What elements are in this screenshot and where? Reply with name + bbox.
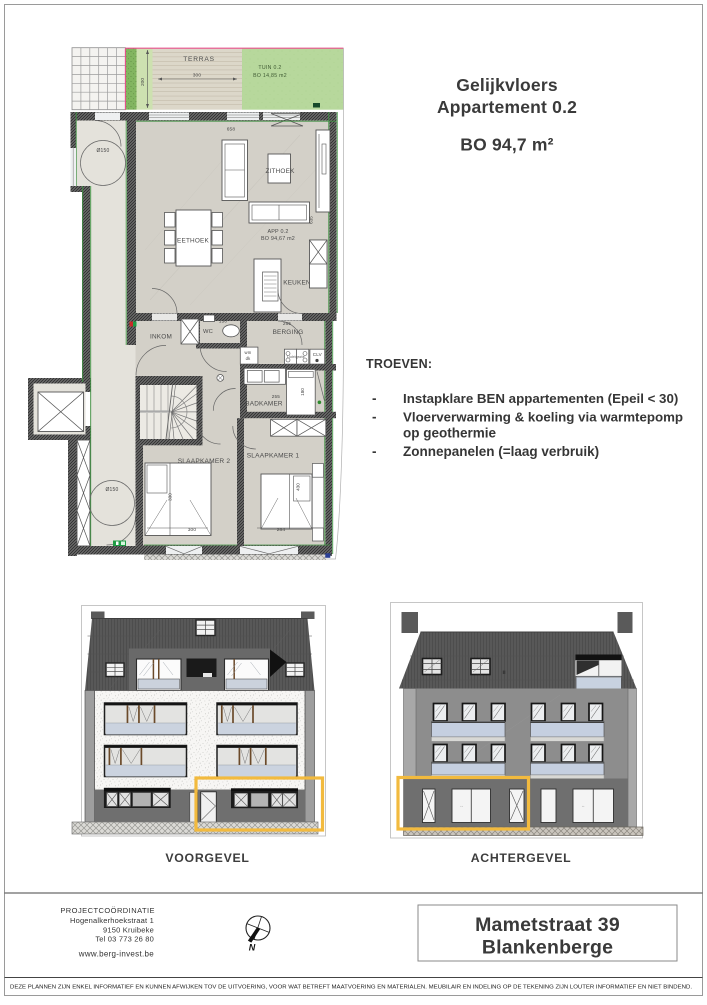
svg-text:Ø150: Ø150	[96, 148, 109, 154]
svg-text:-: -	[372, 391, 377, 406]
svg-text:WC: WC	[203, 329, 213, 335]
svg-text:dk: dk	[246, 356, 252, 361]
svg-text:Instapklare BEN appartementen: Instapklare BEN appartementen (Epeil < 3…	[403, 391, 678, 406]
svg-text:EETHOEK: EETHOEK	[177, 238, 209, 245]
svg-text:KEUKEN: KEUKEN	[283, 280, 311, 287]
svg-text:Ø150: Ø150	[105, 487, 118, 493]
svg-text:330: 330	[168, 493, 173, 501]
svg-text:-: -	[372, 410, 377, 425]
svg-text:↔: ↔	[460, 803, 464, 808]
svg-text:Appartement 0.2: Appartement 0.2	[437, 97, 577, 117]
svg-text:CLV: CLV	[313, 352, 323, 357]
svg-text:www.berg-invest.be: www.berg-invest.be	[78, 950, 154, 959]
svg-text:APP 0.2: APP 0.2	[267, 229, 288, 235]
svg-text:-: -	[372, 444, 377, 459]
svg-text:INKOM: INKOM	[150, 334, 172, 341]
svg-text:op geothermie: op geothermie	[403, 426, 497, 441]
svg-text:TERRAS: TERRAS	[183, 56, 215, 63]
svg-text:Lichtgrote: Lichtgrote	[287, 355, 305, 359]
svg-text:BADKAMER: BADKAMER	[245, 401, 283, 408]
svg-text:↔: ↔	[581, 803, 585, 808]
svg-text:DEZE PLANNEN ZIJN ENKEL INFORM: DEZE PLANNEN ZIJN ENKEL INFORMATIEF EN K…	[10, 985, 692, 991]
svg-text:180: 180	[300, 388, 305, 396]
svg-text:Vloerverwarming & koeling via: Vloerverwarming & koeling via warmtepomp	[403, 410, 683, 425]
svg-text:PROJECTCOÖRDINATIE: PROJECTCOÖRDINATIE	[60, 906, 155, 915]
svg-text:TROEVEN:: TROEVEN:	[366, 357, 432, 371]
svg-text:150: 150	[219, 319, 228, 324]
svg-text:9150 Kruibeke: 9150 Kruibeke	[103, 926, 154, 935]
svg-text:Tel 03 773 26 80: Tel 03 773 26 80	[95, 935, 154, 944]
svg-text:BO 94,67 m2: BO 94,67 m2	[261, 236, 295, 242]
svg-text:Gelijkvloers: Gelijkvloers	[456, 75, 558, 95]
svg-text:BO 14,85 m2: BO 14,85 m2	[253, 73, 287, 79]
svg-text:ZITHOEK: ZITHOEK	[265, 168, 295, 175]
svg-text:658: 658	[227, 127, 236, 133]
svg-text:255: 255	[272, 394, 281, 399]
svg-text:Zonnepanelen (=laag verbruik): Zonnepanelen (=laag verbruik)	[403, 444, 599, 459]
svg-text:wm: wm	[245, 350, 252, 355]
svg-text:SLAAPKAMER 1: SLAAPKAMER 1	[247, 453, 300, 460]
svg-text:N: N	[249, 943, 256, 953]
svg-text:200: 200	[140, 78, 146, 86]
svg-text:Mametstraat 39: Mametstraat 39	[475, 914, 620, 936]
svg-text:635: 635	[309, 216, 314, 224]
svg-text:Blankenberge: Blankenberge	[482, 937, 613, 959]
svg-text:VOORGEVEL: VOORGEVEL	[165, 851, 249, 865]
svg-text:TUIN 0.2: TUIN 0.2	[258, 65, 281, 71]
svg-text:BO 94,7 m²: BO 94,7 m²	[460, 135, 553, 155]
svg-text:430: 430	[296, 483, 301, 491]
svg-text:ACHTERGEVEL: ACHTERGEVEL	[471, 851, 572, 865]
svg-text:Hogenalkerhoekstraat 1: Hogenalkerhoekstraat 1	[70, 916, 154, 925]
svg-text:300: 300	[193, 73, 202, 79]
